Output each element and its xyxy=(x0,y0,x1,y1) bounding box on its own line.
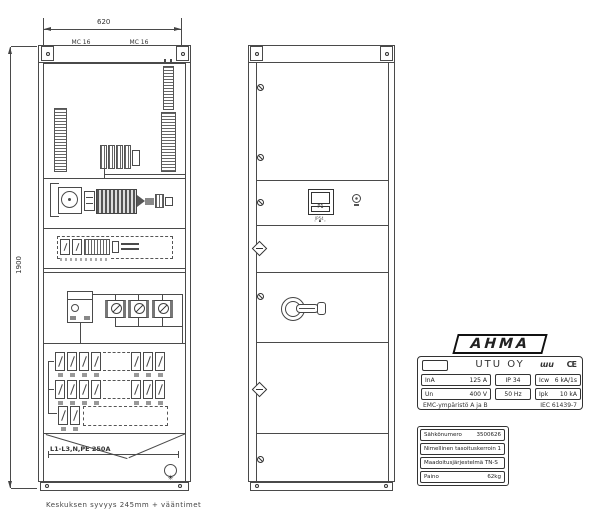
group-bracket xyxy=(49,413,57,414)
signal-lamp-icon xyxy=(352,194,361,203)
wire xyxy=(162,318,163,326)
mounting-bracket xyxy=(380,46,393,61)
section-divider xyxy=(44,272,185,273)
shaft-end xyxy=(165,197,173,206)
rating-label: Un xyxy=(425,391,433,398)
signal-lamp-base xyxy=(354,204,359,206)
wire xyxy=(104,174,186,175)
mcb-breaker xyxy=(55,380,65,399)
info-plate: Sähkönumero 3500626 Nimellinen tasoitusk… xyxy=(417,426,509,486)
rating-value: 125 A xyxy=(470,377,487,384)
contactor-line xyxy=(67,299,93,300)
info-label: Nimellinen tasoituskerroin xyxy=(424,446,496,452)
clamp-tick xyxy=(164,59,166,64)
meter-window: P1 ‹ ▪ › xyxy=(308,189,334,215)
info-label: Sähkönumero xyxy=(424,432,462,438)
section-divider xyxy=(44,228,185,229)
mcb-breaker xyxy=(67,380,77,399)
mcb-breaker xyxy=(79,380,89,399)
fixing-point: ✳ xyxy=(164,464,177,477)
mcb-breaker xyxy=(131,380,141,399)
wire xyxy=(115,326,182,327)
connector-bar xyxy=(121,248,139,250)
mcb-breaker xyxy=(91,380,101,399)
dim-height-label: 1900 xyxy=(16,256,23,274)
info-value: 1 xyxy=(498,446,502,452)
rail-screw-icon xyxy=(255,484,259,488)
connector-bar xyxy=(121,243,139,245)
contactor-coil-icon xyxy=(71,304,79,312)
dim-ext-top xyxy=(11,46,37,47)
door-divider xyxy=(257,225,388,226)
rail-screw-icon xyxy=(45,484,49,488)
group-bracket xyxy=(49,389,54,390)
type-field xyxy=(422,360,448,371)
contactor-terminal xyxy=(70,316,76,320)
cabinet-drawing: 620 1900 MC 16 HTC-3 MC 16 HTKC 36 xyxy=(0,0,600,527)
mounting-bracket xyxy=(250,46,263,61)
meter-center-dot xyxy=(68,198,71,201)
terminal-block xyxy=(116,145,123,169)
busbar-tick xyxy=(178,451,179,458)
handle-end-cap xyxy=(317,302,326,315)
rating-label: Ipk xyxy=(539,391,548,398)
rating-cell-un: Un 400 V xyxy=(421,388,491,400)
rating-value: 10 kA xyxy=(560,391,577,398)
ce-mark-icon: CE xyxy=(567,361,576,369)
mounting-bracket xyxy=(41,46,54,61)
main-switch-body xyxy=(96,189,137,214)
depth-note: Keskuksen syvyys 245mm + vääntimet xyxy=(46,502,201,509)
door-divider xyxy=(257,342,388,343)
door-top-edge xyxy=(248,62,395,63)
coupler-line xyxy=(86,203,93,204)
door-divider xyxy=(257,180,388,181)
door-screw-icon xyxy=(257,199,264,206)
info-label: Paino xyxy=(424,474,439,480)
fuse-base xyxy=(105,300,126,318)
terminal-block xyxy=(124,145,131,169)
rating-value: 6 kA/1s xyxy=(555,377,577,384)
connector-block xyxy=(112,241,119,253)
fuse-base xyxy=(152,300,173,318)
rating-cell-ip: IP 34 xyxy=(495,374,531,386)
group-bracket xyxy=(48,361,49,414)
switch-shaft xyxy=(145,198,154,205)
fuse-base xyxy=(128,300,149,318)
wire xyxy=(182,294,183,343)
dim-arrow-down-icon xyxy=(8,481,12,488)
busbar-line xyxy=(48,454,179,455)
mcb-breaker xyxy=(131,352,141,371)
bracket-screw-icon xyxy=(385,52,389,56)
meter-ip-label: IP54 xyxy=(315,217,324,221)
info-value: 62kg xyxy=(487,474,501,480)
mcb-breaker xyxy=(155,380,165,399)
door-right-edge xyxy=(388,63,389,482)
busbar-label: L1-L3,N,PE 250A xyxy=(50,446,110,453)
emc-note: EMC-ympäristö A ja B xyxy=(423,403,488,409)
section-divider xyxy=(44,433,185,434)
handle-groove xyxy=(299,308,315,309)
rail-screw-icon xyxy=(178,484,182,488)
mcb-breaker xyxy=(55,352,65,371)
info-row-diversity-factor: Nimellinen tasoituskerroin 1 xyxy=(420,443,505,455)
section-divider xyxy=(44,268,185,269)
dim-arrow-left-icon xyxy=(44,27,51,31)
dim-arrow-up-icon xyxy=(8,47,12,54)
info-row-weight: Paino 62kg xyxy=(420,471,505,483)
rating-value: 50 Hz xyxy=(504,391,521,398)
dim-width-label: 620 xyxy=(97,19,110,26)
mcb-breaker xyxy=(143,352,153,371)
contactor-terminal xyxy=(84,316,90,320)
info-row-earthing-system: Maadoitusjärjestelmä TN-S xyxy=(420,457,505,469)
rating-label: InA xyxy=(425,377,435,384)
dim-arrow-right-icon xyxy=(174,27,181,31)
rating-cell-ina: InA 125 A xyxy=(421,374,491,386)
wire xyxy=(115,318,116,326)
busbar-tick xyxy=(48,451,49,458)
clamp-tick xyxy=(170,59,172,64)
mcb-row-continuation xyxy=(103,380,130,399)
label-strip xyxy=(60,258,110,261)
mcb-row-continuation xyxy=(103,352,130,371)
dim-ext-left xyxy=(43,18,44,45)
section-divider xyxy=(44,178,185,179)
info-row-electric-number: Sähkönumero 3500626 xyxy=(420,429,505,441)
rating-label: Icw xyxy=(539,377,549,384)
mcb-breaker xyxy=(58,406,68,425)
brand-plate: AHMA xyxy=(452,334,547,354)
mcb-breaker xyxy=(79,352,89,371)
switch-shaft-tip xyxy=(137,195,145,207)
bracket-screw-icon xyxy=(46,52,50,56)
terminal-end-plate xyxy=(132,150,140,166)
rating-plate: UTU OY ɯu CE InA 125 A IP 34 Icw 6 kA/1s… xyxy=(417,356,583,410)
door-divider xyxy=(257,433,388,434)
mcb-breaker xyxy=(72,239,82,255)
utu-logo-icon: ɯu xyxy=(540,361,554,369)
handle-bar xyxy=(296,304,319,313)
dim-line-width xyxy=(43,29,182,30)
meter-buttons: ‹ ▪ › xyxy=(311,206,330,212)
terminal-block xyxy=(100,145,107,169)
busbar-duct xyxy=(54,108,67,172)
panel-door-view xyxy=(248,45,395,482)
mcb-breaker xyxy=(67,352,77,371)
mcb-breaker xyxy=(91,352,101,371)
door-screw-icon xyxy=(257,293,264,300)
mcb-breaker xyxy=(143,380,153,399)
manufacturer-name: UTU OY xyxy=(460,360,540,370)
rating-cell-ipk: Ipk 10 kA xyxy=(535,388,581,400)
mcb-breaker xyxy=(60,239,70,255)
panel-base-rail xyxy=(40,482,189,491)
dim-ext-bottom xyxy=(11,488,37,489)
door-screw-icon xyxy=(257,84,264,91)
rating-cell-hz: 50 Hz xyxy=(495,388,531,400)
mcb-breaker xyxy=(70,406,80,425)
door-screw-icon xyxy=(257,456,264,463)
section-divider xyxy=(44,343,185,344)
info-value: 3500626 xyxy=(477,432,502,438)
dim-ext-right xyxy=(181,18,182,45)
coupler-line xyxy=(86,197,93,198)
dim-line-height xyxy=(10,47,11,488)
rail-screw-icon xyxy=(384,484,388,488)
info-label: Maadoitusjärjestelmä TN-S xyxy=(424,460,498,466)
door-screw-icon xyxy=(257,154,264,161)
fixing-star-icon: ✳ xyxy=(168,474,174,482)
mcb-breaker xyxy=(155,352,165,371)
rating-value: IP 34 xyxy=(506,377,521,384)
mcb-reserve-space xyxy=(83,406,168,426)
door-divider xyxy=(257,272,388,273)
shaft-adapter xyxy=(155,194,164,208)
bracket-screw-icon xyxy=(181,52,185,56)
switch-coupler xyxy=(84,191,95,211)
bracket-screw-icon xyxy=(255,52,259,56)
group-bracket xyxy=(49,361,54,362)
wire xyxy=(80,323,81,343)
rating-value: 400 V xyxy=(470,391,487,398)
wire xyxy=(138,318,139,326)
terminal-block xyxy=(108,145,115,169)
brand-name: AHMA xyxy=(468,336,532,352)
riser-duct-lower xyxy=(161,112,176,172)
riser-duct-upper xyxy=(163,66,174,110)
meter-screen: P1 xyxy=(311,192,330,204)
standard-note: IEC 61439-7 xyxy=(540,403,577,409)
door-base-rail xyxy=(250,482,393,491)
rating-cell-icw: Icw 6 kA/1s xyxy=(535,374,581,386)
terminal-strip xyxy=(84,239,110,255)
mounting-bracket xyxy=(176,46,189,61)
